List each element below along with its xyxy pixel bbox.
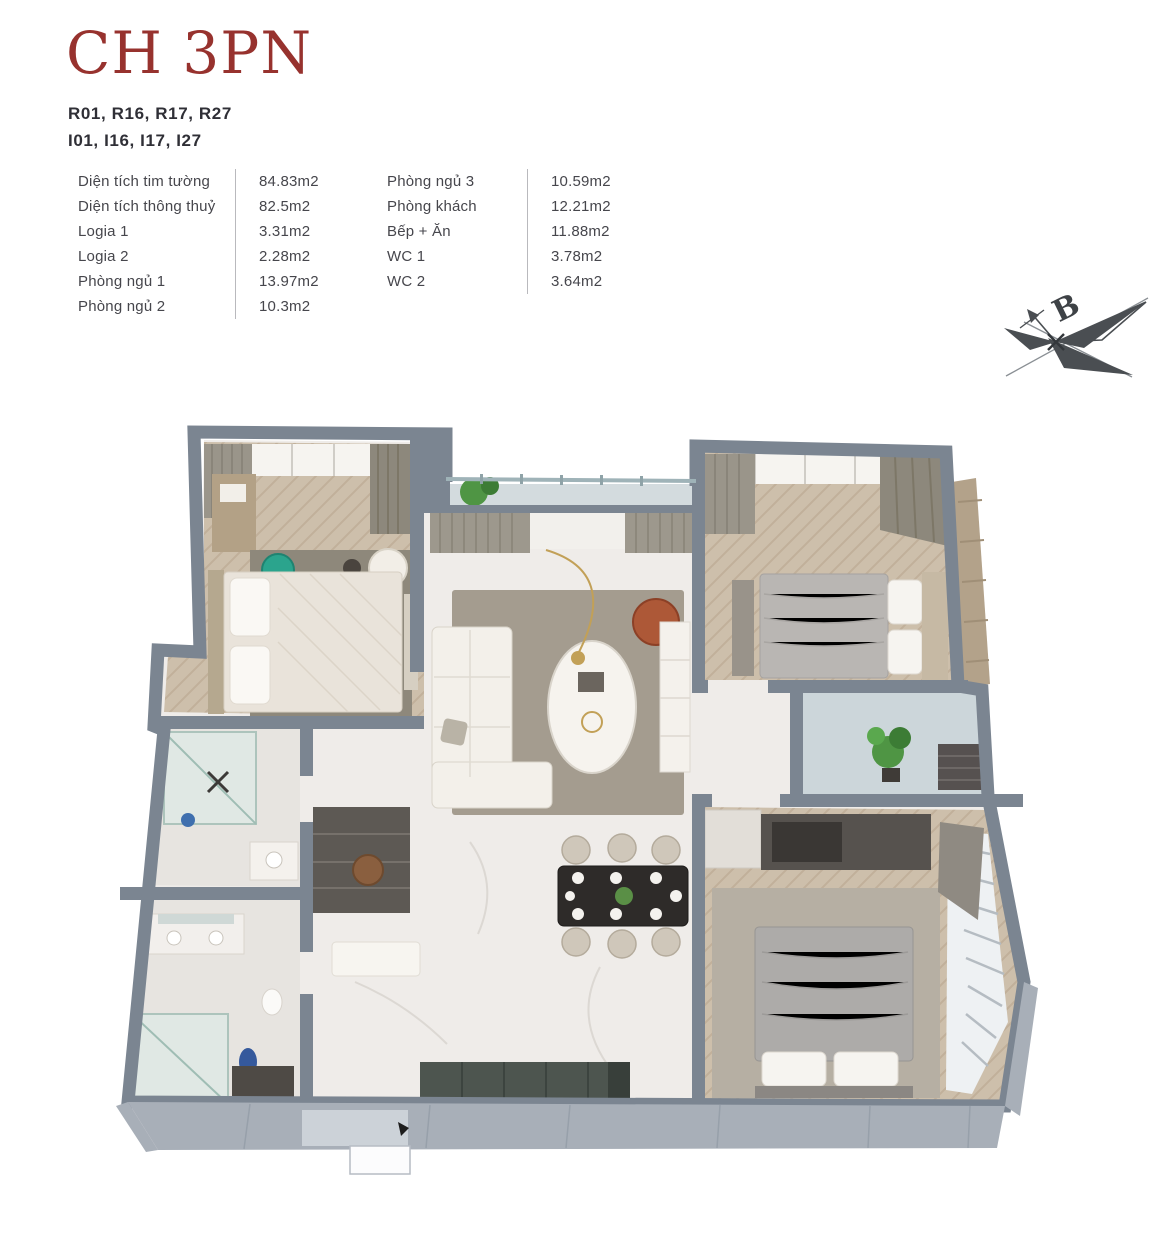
wardrobe	[705, 810, 761, 868]
island-counter	[332, 942, 420, 976]
spec-label: Logia 2	[78, 244, 235, 269]
throw-pillow	[440, 718, 468, 746]
sofa	[432, 627, 512, 779]
logia-2	[803, 692, 988, 794]
bed	[760, 574, 888, 678]
spec-label: Diện tích tim tường	[78, 169, 235, 194]
spec-label: Diện tích thông thuỷ	[78, 194, 235, 219]
spec-value: 3.31m2	[235, 219, 365, 244]
spec-label: Logia 1	[78, 219, 235, 244]
page-title: CH 3PN	[66, 18, 312, 88]
curtain	[370, 444, 410, 534]
coffee-table	[548, 641, 636, 773]
round-mirror	[353, 855, 383, 885]
unit-codes: R01, R16, R17, R27 I01, I16, I17, I27	[68, 100, 232, 154]
curtain	[705, 454, 755, 534]
headboard	[208, 570, 224, 714]
spec-label: Phòng ngủ 1	[78, 269, 235, 294]
pillow	[888, 630, 922, 674]
spec-label: Phòng khách	[387, 194, 527, 219]
spec-value: 3.64m2	[527, 269, 657, 294]
runner-rug	[732, 580, 754, 676]
bathroom-wc1	[146, 729, 300, 887]
balcony-railing	[446, 479, 696, 481]
entry-door-recess	[302, 1110, 408, 1146]
spec-value: 12.21m2	[527, 194, 657, 219]
sheer-curtain	[530, 513, 625, 549]
pillow	[834, 1052, 898, 1086]
pillow	[230, 646, 270, 704]
spec-value: 10.59m2	[527, 169, 657, 194]
entry-door-leaf	[350, 1146, 410, 1174]
headboard	[755, 1086, 913, 1098]
spec-table-left: Diện tích tim tường 84.83m2 Diện tích th…	[78, 169, 365, 319]
floorplan-sheet: CH 3PN R01, R16, R17, R27 I01, I16, I17,…	[0, 0, 1168, 1237]
spec-value: 84.83m2	[235, 169, 365, 194]
spec-label: WC 2	[387, 269, 527, 294]
spec-value: 82.5m2	[235, 194, 365, 219]
sofa-chaise	[432, 762, 552, 808]
spec-value: 10.3m2	[235, 294, 365, 319]
compass-north-label: B	[1047, 287, 1085, 330]
headboard	[922, 572, 948, 684]
spec-value: 2.28m2	[235, 244, 365, 269]
pillow	[230, 578, 270, 636]
bedroom-3	[705, 807, 1022, 1104]
wall-cabinet	[660, 622, 690, 772]
unit-codes-line-1: R01, R16, R17, R27	[68, 100, 232, 127]
bathroom-wc2	[130, 900, 300, 1108]
spec-value: 11.88m2	[527, 219, 657, 244]
compass-icon: B	[998, 280, 1168, 400]
toilet	[262, 989, 282, 1015]
unit-codes-line-2: I01, I16, I17, I27	[68, 127, 232, 154]
pillow	[888, 580, 922, 624]
spec-table-right: Phòng ngủ 3 10.59m2 Phòng khách 12.21m2 …	[387, 169, 657, 294]
curtain	[430, 513, 530, 553]
floor-plan	[100, 422, 1060, 1187]
spec-label: Phòng ngủ 3	[387, 169, 527, 194]
spec-label: Phòng ngủ 2	[78, 294, 235, 319]
spec-value: 3.78m2	[527, 244, 657, 269]
spec-label: WC 1	[387, 244, 527, 269]
spec-value: 13.97m2	[235, 269, 365, 294]
spec-label: Bếp + Ăn	[387, 219, 527, 244]
centerpiece	[615, 887, 633, 905]
pillow	[762, 1052, 826, 1086]
